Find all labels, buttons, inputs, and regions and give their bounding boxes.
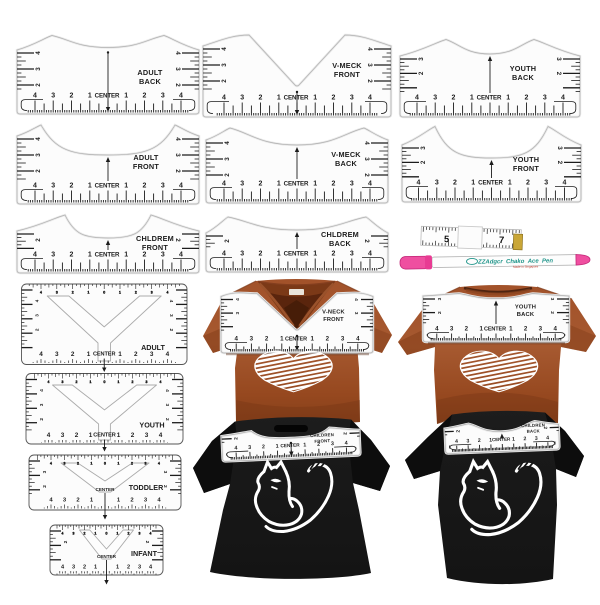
svg-text:1: 1 (508, 180, 512, 187)
svg-text:4: 4 (160, 380, 162, 384)
svg-text:2: 2 (174, 83, 181, 87)
svg-text:2: 2 (143, 183, 147, 190)
svg-text:BACK: BACK (139, 77, 161, 86)
svg-text:2: 2 (478, 438, 481, 444)
svg-text:3: 3 (146, 380, 148, 384)
svg-text:3: 3 (51, 252, 55, 259)
svg-text:4: 4 (47, 432, 51, 439)
svg-text:1: 1 (116, 564, 119, 570)
svg-text:CENTER: CENTER (95, 92, 120, 99)
svg-text:4: 4 (39, 389, 45, 392)
svg-text:2: 2 (524, 326, 528, 333)
svg-text:2: 2 (132, 380, 134, 384)
svg-text:3: 3 (543, 95, 547, 102)
svg-text:1: 1 (87, 351, 91, 358)
svg-text:3: 3 (39, 403, 45, 406)
svg-text:3: 3 (341, 336, 345, 343)
svg-text:3: 3 (145, 432, 149, 439)
svg-text:CENTER: CENTER (95, 182, 120, 189)
svg-text:ADULT: ADULT (137, 68, 163, 77)
svg-text:2: 2 (134, 351, 138, 358)
svg-text:2: 2 (144, 541, 150, 544)
svg-text:2: 2 (262, 444, 265, 450)
svg-text:4: 4 (179, 183, 183, 190)
svg-text:YOUTH: YOUTH (510, 64, 537, 73)
svg-text:3: 3 (138, 564, 141, 570)
svg-text:4: 4 (179, 252, 183, 259)
svg-text:FRONT: FRONT (133, 162, 159, 171)
svg-text:4: 4 (356, 336, 360, 343)
svg-text:2: 2 (35, 238, 42, 242)
svg-text:3: 3 (161, 252, 165, 259)
svg-text:4: 4 (62, 532, 64, 536)
svg-text:4: 4 (179, 93, 183, 100)
svg-text:1: 1 (512, 437, 515, 443)
svg-text:4: 4 (150, 532, 152, 536)
svg-text:V-MECK: V-MECK (331, 150, 361, 159)
svg-text:4: 4 (50, 462, 52, 466)
svg-text:4: 4 (164, 389, 170, 392)
svg-text:1: 1 (310, 336, 314, 343)
svg-text:2: 2 (71, 351, 75, 358)
svg-text:2: 2 (77, 462, 79, 466)
svg-text:3: 3 (363, 157, 370, 161)
svg-text:2: 2 (525, 95, 529, 102)
svg-text:4: 4 (33, 252, 37, 259)
svg-text:2: 2 (70, 183, 74, 190)
svg-text:3: 3 (174, 153, 181, 157)
svg-text:CENTER: CENTER (93, 433, 115, 439)
svg-text:2: 2 (332, 181, 336, 188)
svg-text:3: 3 (161, 183, 165, 190)
svg-text:3: 3 (240, 95, 244, 102)
svg-text:2: 2 (143, 93, 147, 100)
svg-text:3: 3 (555, 57, 562, 61)
svg-text:4: 4 (168, 300, 174, 303)
svg-text:1: 1 (95, 532, 97, 536)
svg-text:2: 2 (39, 418, 45, 421)
svg-text:2: 2 (128, 532, 130, 536)
svg-text:1: 1 (280, 336, 284, 343)
svg-text:4: 4 (417, 180, 421, 187)
svg-text:1: 1 (91, 462, 93, 466)
svg-text:1: 1 (124, 93, 128, 100)
svg-text:1: 1 (118, 351, 122, 358)
svg-text:3: 3 (42, 470, 48, 473)
svg-text:2: 2 (162, 485, 168, 488)
svg-text:2: 2 (549, 311, 555, 314)
svg-text:CENTER: CENTER (284, 180, 309, 187)
svg-text:2: 2 (42, 485, 48, 488)
svg-text:CENTER: CENTER (96, 487, 116, 492)
svg-text:BACK: BACK (527, 428, 541, 434)
svg-text:1: 1 (277, 181, 281, 188)
svg-text:FRONT: FRONT (314, 438, 330, 444)
svg-text:BACK: BACK (335, 159, 357, 168)
svg-text:4: 4 (166, 351, 170, 358)
svg-text:CENTER: CENTER (477, 94, 502, 101)
svg-text:1: 1 (313, 95, 317, 102)
svg-text:3: 3 (331, 441, 334, 447)
svg-text:2: 2 (523, 436, 526, 442)
svg-text:BACK: BACK (517, 312, 535, 318)
svg-text:2: 2 (70, 252, 74, 259)
svg-text:3: 3 (240, 251, 244, 258)
svg-text:3: 3 (353, 312, 359, 315)
svg-text:V-NECK: V-NECK (322, 310, 345, 316)
svg-text:4: 4 (563, 180, 567, 187)
svg-text:FRONT: FRONT (323, 317, 344, 323)
svg-text:YOUTH: YOUTH (513, 155, 540, 164)
svg-text:4: 4 (34, 299, 40, 302)
svg-text:2: 2 (221, 79, 228, 83)
svg-text:3: 3 (55, 351, 59, 358)
svg-text:2: 2 (35, 169, 42, 173)
svg-text:3: 3 (248, 445, 251, 451)
svg-text:2: 2 (164, 418, 170, 421)
svg-text:3: 3 (174, 67, 181, 71)
svg-text:2: 2 (75, 432, 79, 439)
svg-text:2: 2 (420, 160, 427, 164)
svg-text:2: 2 (366, 79, 373, 83)
svg-text:1: 1 (124, 252, 128, 259)
svg-text:FRONT: FRONT (334, 70, 360, 79)
svg-text:2: 2 (174, 238, 181, 242)
svg-text:0: 0 (103, 291, 105, 295)
svg-text:3: 3 (450, 326, 454, 333)
svg-text:2: 2 (72, 291, 74, 295)
svg-text:2: 2 (259, 181, 263, 188)
svg-text:4: 4 (174, 51, 181, 55)
svg-text:2: 2 (127, 564, 130, 570)
svg-text:CHLDREM: CHLDREM (321, 230, 359, 239)
svg-text:3: 3 (224, 157, 231, 161)
svg-text:3: 3 (433, 95, 437, 102)
svg-text:4: 4 (40, 291, 42, 295)
svg-text:4: 4 (561, 95, 565, 102)
svg-text:4: 4 (39, 351, 43, 358)
svg-text:2: 2 (332, 95, 336, 102)
svg-text:1: 1 (88, 93, 92, 100)
svg-text:3: 3 (435, 180, 439, 187)
svg-text:2: 2 (143, 252, 147, 259)
svg-text:1: 1 (88, 291, 90, 295)
svg-text:4: 4 (158, 462, 160, 466)
svg-text:3: 3 (168, 314, 174, 317)
svg-text:2: 2 (465, 326, 469, 333)
svg-text:4: 4 (363, 141, 370, 145)
svg-text:2: 2 (332, 251, 336, 258)
svg-text:3: 3 (539, 326, 543, 333)
svg-text:3: 3 (35, 153, 42, 157)
svg-text:4: 4 (222, 181, 226, 188)
svg-text:2: 2 (437, 311, 443, 314)
svg-text:2: 2 (363, 239, 370, 243)
svg-text:3: 3 (161, 93, 165, 100)
svg-text:2: 2 (174, 169, 181, 173)
svg-text:2: 2 (34, 328, 40, 331)
svg-text:CENTER: CENTER (284, 94, 309, 101)
svg-text:CENTER: CENTER (284, 250, 309, 257)
svg-text:1: 1 (124, 183, 128, 190)
svg-text:3: 3 (466, 438, 469, 444)
svg-text:1: 1 (118, 462, 120, 466)
svg-text:4: 4 (48, 380, 50, 384)
svg-text:INFANT: INFANT (131, 549, 158, 558)
svg-text:4: 4 (224, 141, 231, 145)
svg-text:ADULT: ADULT (133, 153, 159, 162)
svg-text:3: 3 (51, 93, 55, 100)
svg-text:4: 4 (234, 336, 238, 343)
svg-text:CENTER: CENTER (285, 336, 307, 342)
svg-text:1: 1 (506, 95, 510, 102)
svg-text:4: 4 (368, 181, 372, 188)
svg-text:CENTER: CENTER (478, 179, 503, 186)
svg-text:2: 2 (131, 462, 133, 466)
svg-text:1: 1 (277, 251, 281, 258)
svg-text:3: 3 (145, 462, 147, 466)
svg-text:2: 2 (224, 239, 231, 243)
svg-text:3: 3 (139, 532, 141, 536)
svg-text:3: 3 (62, 380, 64, 384)
svg-text:4: 4 (234, 446, 237, 452)
svg-text:1: 1 (88, 183, 92, 190)
svg-text:4: 4 (35, 137, 42, 141)
svg-text:2: 2 (453, 180, 457, 187)
svg-text:4: 4 (33, 93, 37, 100)
svg-text:2: 2 (363, 173, 370, 177)
svg-text:3: 3 (544, 180, 548, 187)
svg-text:1: 1 (313, 181, 317, 188)
svg-text:4: 4 (353, 298, 359, 301)
svg-text:FRONT: FRONT (513, 164, 539, 173)
svg-text:4: 4 (368, 251, 372, 258)
svg-text:3: 3 (350, 251, 354, 258)
svg-text:1: 1 (471, 180, 475, 187)
svg-text:4: 4 (546, 435, 549, 441)
svg-text:1: 1 (470, 95, 474, 102)
svg-text:2: 2 (70, 93, 74, 100)
svg-text:YOUTH: YOUTH (515, 305, 536, 311)
svg-text:Made in Singapore: Made in Singapore (513, 264, 539, 268)
svg-text:2: 2 (259, 95, 263, 102)
svg-text:V-MECK: V-MECK (332, 61, 362, 70)
svg-text:CENTER: CENTER (95, 251, 120, 258)
svg-text:3: 3 (221, 63, 228, 67)
svg-text:3: 3 (437, 297, 443, 300)
svg-text:4: 4 (222, 251, 226, 258)
svg-text:2: 2 (76, 380, 78, 384)
svg-text:3: 3 (350, 95, 354, 102)
svg-text:2: 2 (168, 328, 174, 331)
svg-text:4: 4 (455, 439, 458, 445)
svg-text:3: 3 (549, 298, 555, 301)
svg-text:3: 3 (164, 404, 170, 407)
svg-text:2: 2 (555, 72, 562, 76)
svg-text:2: 2 (83, 564, 86, 570)
svg-text:0: 0 (104, 380, 106, 384)
svg-text:3: 3 (64, 462, 66, 466)
svg-text:4: 4 (368, 95, 372, 102)
svg-text:2: 2 (265, 336, 269, 343)
svg-text:3: 3 (34, 314, 40, 317)
svg-text:2: 2 (224, 173, 231, 177)
svg-text:2: 2 (135, 291, 137, 295)
svg-text:4: 4 (435, 326, 439, 333)
svg-text:1: 1 (117, 432, 121, 439)
svg-text:7: 7 (499, 235, 505, 246)
svg-text:2: 2 (326, 336, 330, 343)
svg-text:BACK: BACK (512, 73, 534, 82)
svg-text:FRONT: FRONT (142, 243, 168, 252)
svg-text:1: 1 (509, 326, 513, 333)
svg-text:1: 1 (277, 95, 281, 102)
svg-text:1: 1 (313, 251, 317, 258)
svg-text:1: 1 (479, 326, 483, 333)
svg-text:2: 2 (452, 95, 456, 102)
svg-text:4: 4 (222, 95, 226, 102)
svg-text:4: 4 (35, 51, 42, 55)
svg-text:3: 3 (51, 183, 55, 190)
svg-text:4: 4 (174, 137, 181, 141)
svg-text:1: 1 (276, 444, 279, 450)
svg-text:1: 1 (119, 291, 121, 295)
svg-text:4: 4 (221, 47, 228, 51)
svg-text:3: 3 (235, 311, 241, 314)
svg-text:CENTER: CENTER (97, 554, 117, 559)
svg-text:3: 3 (73, 532, 75, 536)
svg-text:CENTER: CENTER (484, 326, 506, 332)
svg-text:4: 4 (33, 183, 37, 190)
svg-text:1: 1 (94, 564, 97, 570)
svg-text:1: 1 (118, 380, 120, 384)
svg-text:3: 3 (240, 181, 244, 188)
svg-text:3: 3 (418, 57, 425, 61)
svg-text:CENTER: CENTER (93, 352, 115, 358)
svg-text:1: 1 (89, 432, 93, 439)
svg-text:2: 2 (84, 532, 86, 536)
svg-text:3: 3 (250, 336, 254, 343)
svg-text:2: 2 (63, 540, 69, 543)
svg-text:4: 4 (553, 326, 557, 333)
svg-text:4: 4 (415, 95, 419, 102)
svg-text:3: 3 (420, 146, 427, 150)
svg-text:3: 3 (535, 436, 538, 442)
svg-text:0: 0 (104, 462, 106, 466)
svg-text:2: 2 (35, 83, 42, 87)
svg-text:CHLDREM: CHLDREM (136, 234, 174, 243)
svg-text:4: 4 (159, 432, 163, 439)
svg-text:3: 3 (151, 291, 153, 295)
svg-text:2: 2 (556, 161, 563, 165)
svg-text:3: 3 (72, 564, 75, 570)
svg-text:TODDLER: TODDLER (129, 483, 164, 492)
svg-text:1: 1 (303, 442, 306, 448)
svg-text:2: 2 (131, 432, 135, 439)
svg-text:1: 1 (90, 380, 92, 384)
svg-text:4: 4 (366, 47, 373, 51)
svg-text:YOUTH: YOUTH (139, 421, 164, 430)
svg-text:3: 3 (556, 146, 563, 150)
svg-text:3: 3 (61, 432, 65, 439)
svg-text:ADULT: ADULT (141, 343, 165, 352)
svg-text:3: 3 (56, 291, 58, 295)
svg-text:4: 4 (235, 298, 241, 301)
svg-text:3: 3 (162, 471, 168, 474)
svg-text:3: 3 (35, 67, 42, 71)
svg-text:2: 2 (259, 251, 263, 258)
svg-text:1: 1 (117, 532, 119, 536)
svg-text:2: 2 (418, 71, 425, 75)
svg-text:BACK: BACK (329, 239, 351, 248)
svg-text:3: 3 (366, 63, 373, 67)
svg-text:CHILDREN: CHILDREN (521, 422, 545, 428)
svg-text:4: 4 (345, 441, 348, 447)
svg-text:3: 3 (350, 181, 354, 188)
svg-text:2: 2 (526, 180, 530, 187)
svg-text:1: 1 (88, 252, 92, 259)
svg-text:0: 0 (106, 532, 108, 536)
svg-text:4: 4 (166, 291, 168, 295)
